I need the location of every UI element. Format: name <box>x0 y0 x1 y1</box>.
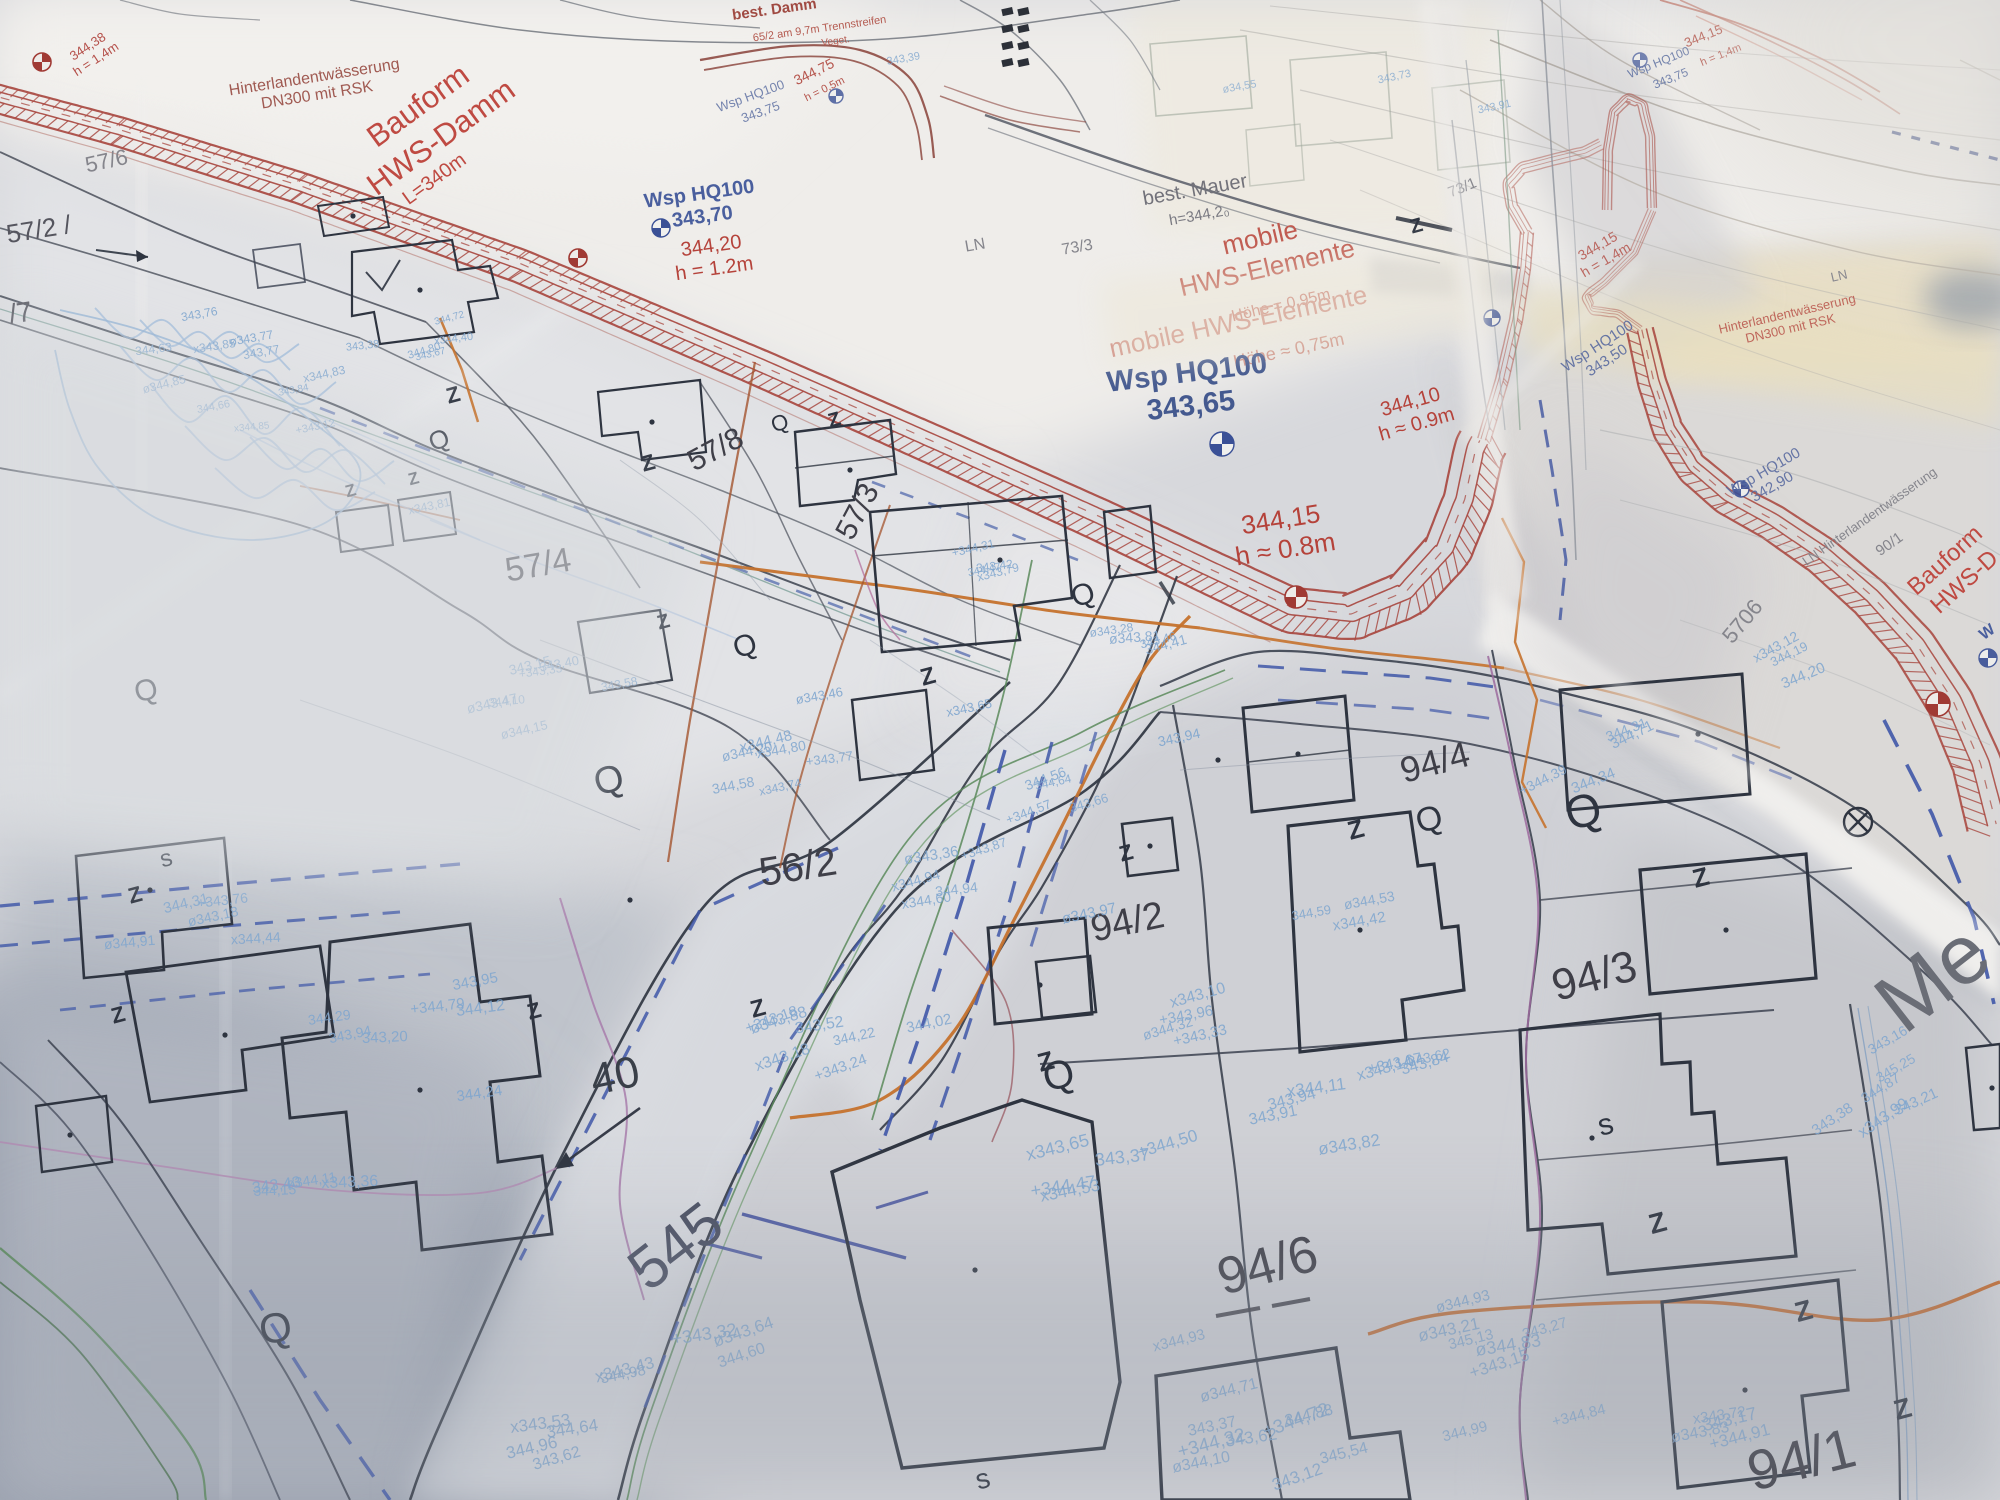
svg-text:40: 40 <box>586 1047 644 1105</box>
svg-text:x343,36: x343,36 <box>321 1173 379 1192</box>
svg-text:x344,44: x344,44 <box>230 929 281 948</box>
svg-text:LN: LN <box>964 235 987 255</box>
